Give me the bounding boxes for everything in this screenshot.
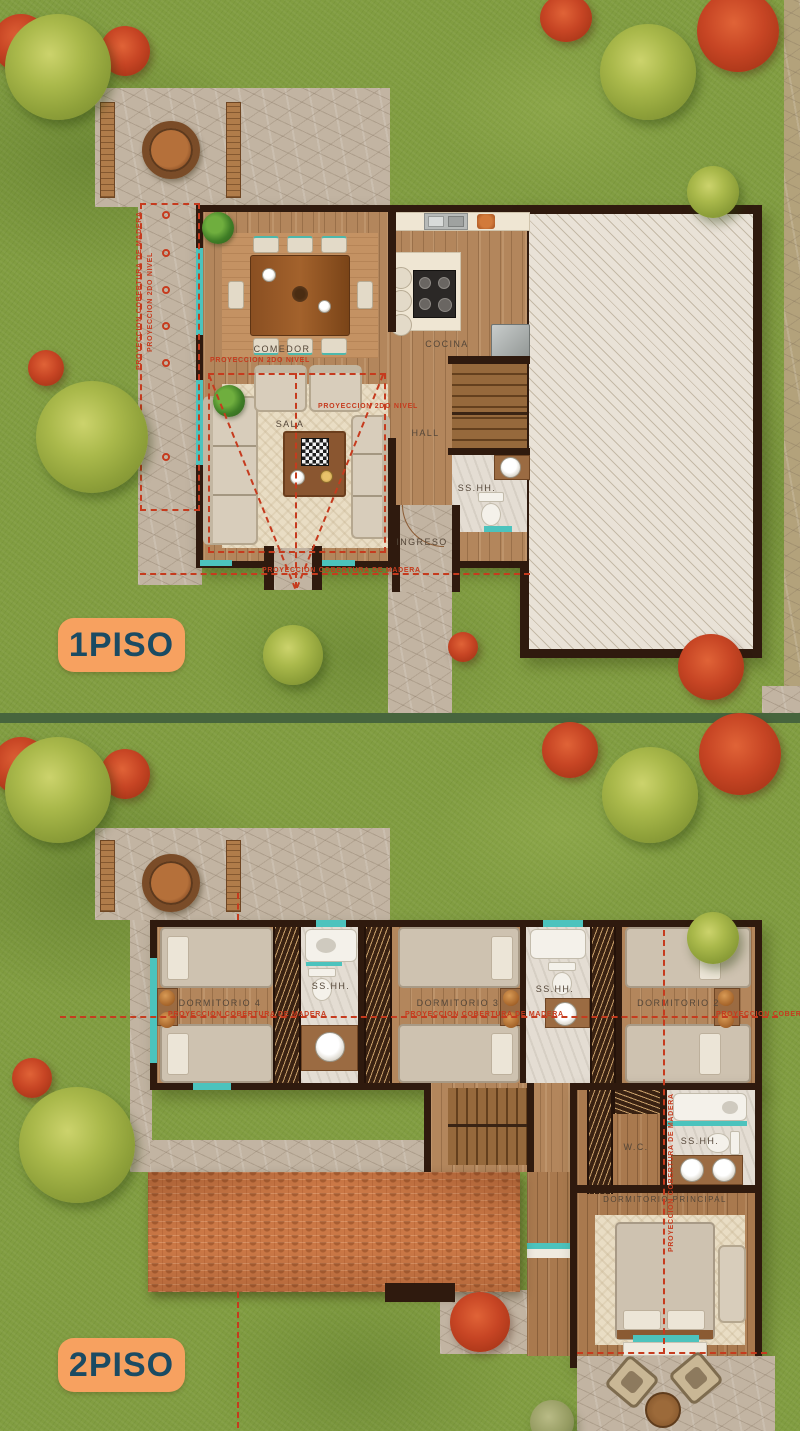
bed (160, 927, 273, 988)
room-label-dormitorio2: DORMITORIO 2 (616, 998, 741, 1008)
projection-post (162, 211, 170, 219)
tree (600, 24, 696, 120)
tree (36, 381, 148, 493)
bathtub (305, 929, 357, 962)
bed (160, 1024, 273, 1083)
projection-line (295, 373, 297, 588)
annotation-text: PROYECCION 2DO NIVEL (210, 357, 310, 364)
room-label-dormitorio-principal: DORMITORIO PRINCIPAL (590, 1195, 740, 1204)
projection-post (162, 453, 170, 461)
window-marker (306, 962, 342, 966)
window-marker (322, 560, 355, 566)
dining-chair (287, 236, 313, 253)
bed-principal (615, 1222, 715, 1340)
kitchen-sink-basin (428, 216, 444, 227)
room-label-sshh: SS.HH. (447, 483, 507, 493)
room-label-cocina: COCINA (412, 339, 482, 349)
toilet-tank (478, 492, 504, 502)
fire-pit (142, 121, 200, 179)
stone-patch (762, 686, 800, 713)
kitchen-sink-basin (448, 216, 464, 227)
site-plan-canvas: COMEDOR COCINA SALA HALL SS.HH. INGRESO … (0, 0, 800, 1431)
entry-wall (392, 505, 400, 592)
future-expansion-area (529, 214, 753, 649)
bed (398, 1024, 520, 1083)
stair-landing-divider (452, 412, 527, 415)
projection-post (162, 359, 170, 367)
stone-patio (95, 828, 390, 920)
projection-line (237, 1292, 239, 1428)
closet (590, 927, 616, 1083)
side-path (784, 0, 800, 713)
annotation-text: PROYECCION 2DO NIVEL (147, 252, 154, 352)
tree (19, 1087, 135, 1203)
window-marker (193, 1083, 231, 1090)
table-plate (318, 300, 331, 313)
red-bush (699, 713, 781, 795)
fire-pit (142, 854, 200, 912)
bed (625, 1024, 751, 1083)
window-marker (150, 958, 157, 1063)
table-bowl (292, 286, 308, 302)
hall-wall (424, 1083, 431, 1172)
partition-wall (388, 205, 396, 332)
tree (687, 912, 739, 964)
dining-chair (253, 236, 279, 253)
window-marker (316, 920, 346, 927)
cooktop (413, 270, 456, 318)
table-plate (262, 268, 276, 282)
tree (5, 737, 111, 843)
chaise (718, 1245, 746, 1323)
floor-badge-1piso: 1PISO (58, 618, 185, 672)
room-label-sshh3: SS.HH. (668, 1136, 732, 1146)
garden-bench (226, 102, 241, 198)
roof-shading (148, 1172, 520, 1292)
projection-line (237, 893, 239, 920)
room-label-dormitorio4: DORMITORIO 4 (160, 998, 280, 1008)
room-label-ingreso: INGRESO (391, 537, 453, 547)
toilet-tank (308, 968, 336, 977)
room-label-wc: W.C. (608, 1142, 664, 1152)
plant (202, 212, 234, 244)
red-bush (450, 1292, 510, 1352)
bathroom-sink (712, 1158, 736, 1182)
garden-bench (100, 102, 115, 198)
annotation-text: PROYECCION COBERTURA DE MADERA (168, 1011, 327, 1018)
tree (5, 14, 111, 120)
red-bush (28, 350, 64, 386)
red-bush (448, 632, 478, 662)
red-bush (12, 1058, 52, 1098)
projection-post (162, 286, 170, 294)
projection-outline (140, 203, 200, 511)
stone-patio (95, 88, 390, 207)
projection-post (162, 322, 170, 330)
projection-line (663, 930, 665, 1354)
garden-bench (100, 840, 115, 912)
window-marker (667, 1121, 747, 1126)
room-label-hall: HALL (398, 428, 453, 438)
stair-wall (448, 356, 530, 364)
annotation-text: PROYECCION COBERTURA DE MADERA (262, 567, 421, 574)
toilet-tank (548, 962, 576, 971)
stair-landing-divider (448, 1124, 527, 1127)
window-marker (484, 526, 512, 532)
entry-wall (452, 505, 460, 592)
red-bush (542, 722, 598, 778)
room-label-sshh1: SS.HH. (303, 981, 359, 991)
bathtub (673, 1093, 747, 1121)
window-marker (633, 1335, 699, 1342)
annotation-text: PROYECCION COBERTURA DE MADERA (136, 211, 143, 370)
annotation-text: PROYECCION COBERTURA DE MADERA (668, 1093, 675, 1252)
outdoor-table (645, 1392, 681, 1428)
room-label-sshh2: SS.HH. (524, 984, 586, 994)
window-marker (200, 560, 232, 566)
room-label-comedor: COMEDOR (227, 344, 337, 354)
shower (530, 929, 586, 959)
wardrobe (613, 1090, 665, 1114)
partition-wall (577, 1185, 755, 1193)
red-bush (678, 634, 744, 700)
tree (263, 625, 323, 685)
projection-outline-sala (208, 373, 386, 553)
projection-post (162, 249, 170, 257)
closet (364, 927, 392, 1083)
annotation-text: PROYECCION COBERTURA DE MADERA (716, 1011, 800, 1018)
projection-line (577, 1352, 767, 1354)
stone-band (150, 1140, 462, 1174)
dining-chair (357, 281, 373, 309)
stair-wall (527, 1083, 534, 1172)
toilet-bowl (481, 503, 501, 526)
floor-divider (0, 713, 800, 723)
tree (602, 747, 698, 843)
room-label-dormitorio3: DORMITORIO 3 (398, 998, 518, 1008)
dining-chair (321, 236, 347, 253)
bathroom-sink (500, 457, 521, 478)
dining-chair (228, 281, 244, 309)
floor-badge-2piso: 2PISO (58, 1338, 185, 1392)
tree (687, 166, 739, 218)
chimney (385, 1283, 455, 1302)
bed (398, 927, 520, 988)
bathroom-wall (448, 448, 530, 455)
annotation-text: PROYECCION COBERTURA DE MADERA (405, 1011, 564, 1018)
bathroom-sink (680, 1158, 704, 1182)
countertop-item (477, 214, 495, 229)
bathroom-sink (315, 1032, 345, 1062)
window-marker (543, 920, 583, 927)
